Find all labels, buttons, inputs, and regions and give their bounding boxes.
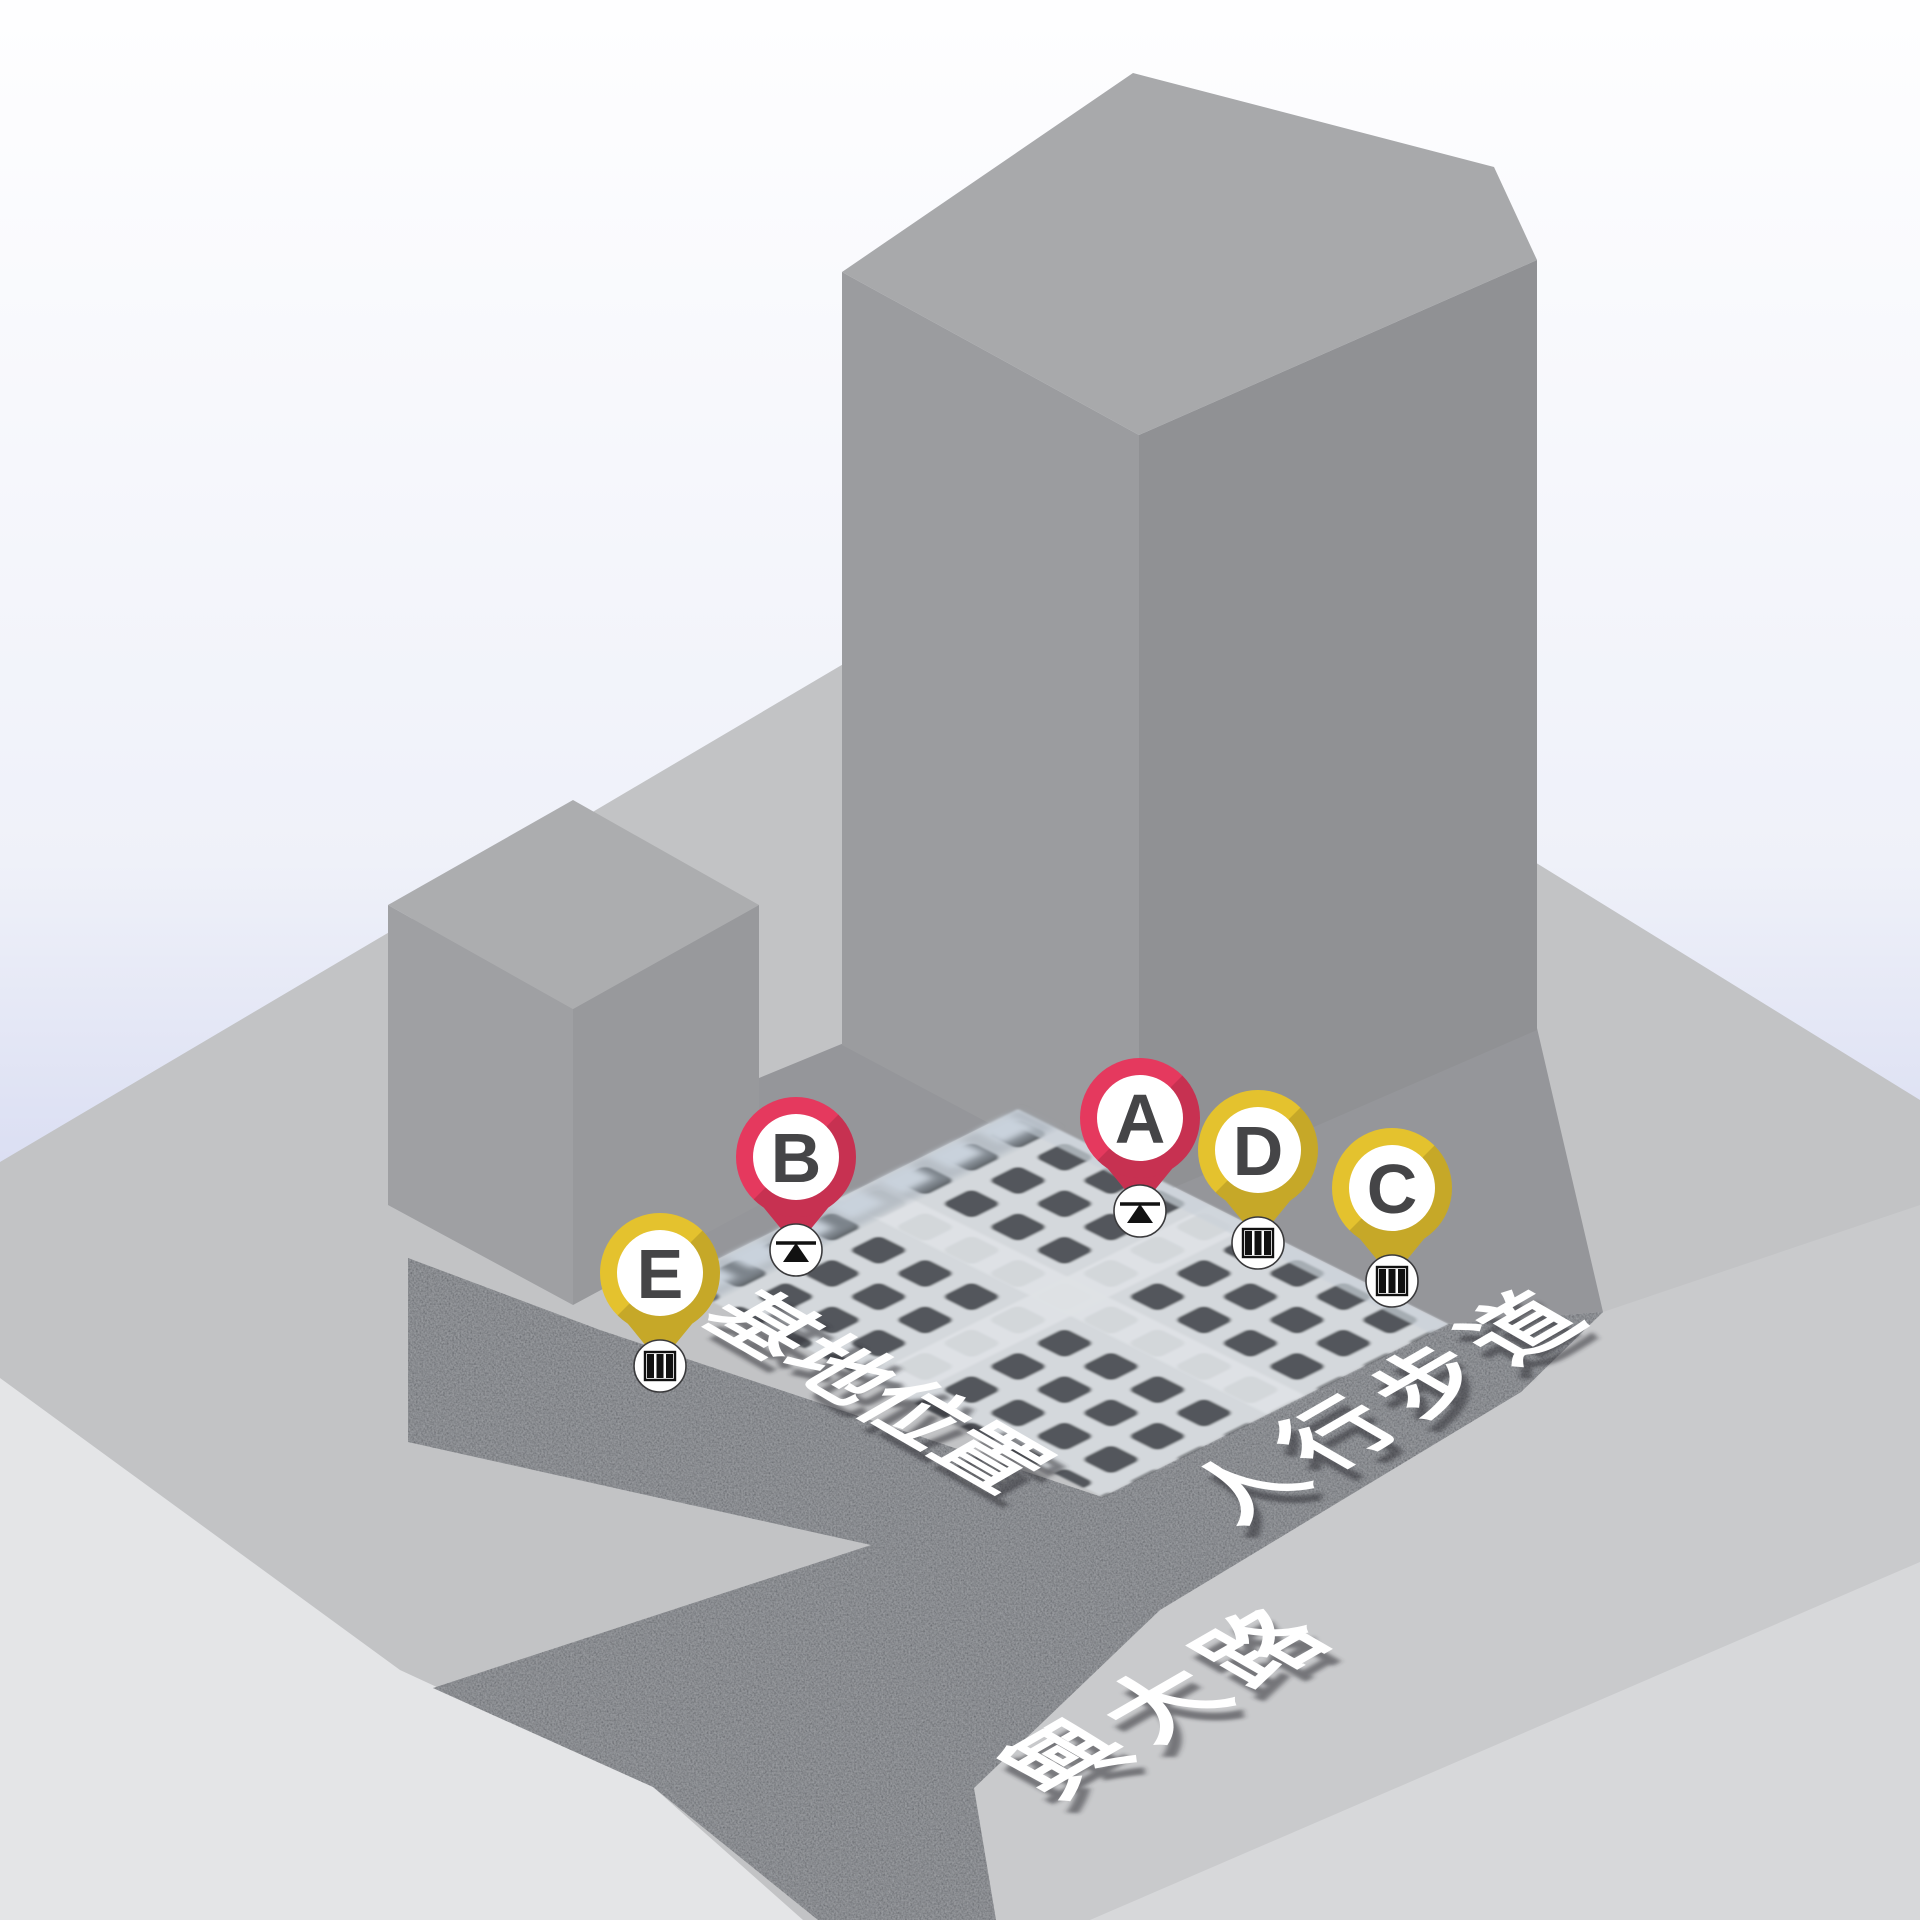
tall-building-left-face <box>842 272 1139 1203</box>
gauge-icon <box>1232 1217 1284 1269</box>
benchmark-icon <box>1114 1185 1166 1237</box>
site-map-canvas: 基地位置 基地位置 人行步道 人行步道 興大路 興大路 E B <box>0 0 1920 1920</box>
tall-building <box>842 73 1537 1203</box>
benchmark-icon <box>770 1224 822 1276</box>
pin-letter: C <box>1367 1150 1418 1228</box>
pin-letter: B <box>771 1119 822 1197</box>
isometric-scene: 基地位置 基地位置 人行步道 人行步道 興大路 興大路 E B <box>0 0 1920 1920</box>
gauge-icon <box>1366 1255 1418 1307</box>
small-building <box>388 800 759 1305</box>
pin-letter: A <box>1115 1080 1166 1158</box>
pin-letter: D <box>1233 1112 1284 1190</box>
pin-letter: E <box>637 1235 684 1313</box>
gauge-icon <box>634 1340 686 1392</box>
